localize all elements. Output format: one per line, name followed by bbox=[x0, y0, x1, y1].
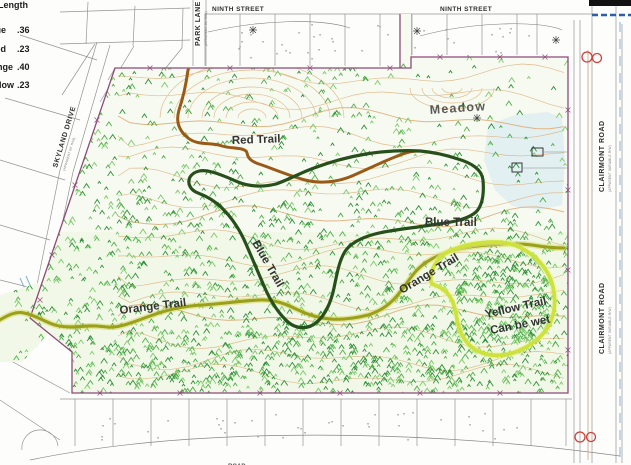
legend-row-yellow-label: Yellow bbox=[0, 80, 15, 90]
legend-row-orange-value: .40 bbox=[17, 62, 30, 72]
ninth-street-right-label: NINTH STREET bbox=[440, 6, 492, 13]
park-lane-sub-label: (APPARENT 50' R/W) bbox=[204, 11, 208, 46]
clairmont-road-upper-label: CLAIRMONT ROAD bbox=[599, 120, 606, 192]
trail-map-scan: Length Blue .36 Red .23 Orange .40 Yello… bbox=[0, 0, 631, 465]
red-circle-top-1 bbox=[582, 52, 592, 62]
legend-header: Length bbox=[0, 0, 28, 10]
legend: Length Blue .36 Red .23 Orange .40 Yello… bbox=[0, 0, 30, 90]
scale-bar bbox=[589, 0, 631, 6]
legend-row-blue-label: Blue bbox=[0, 25, 6, 35]
park-lane-label: PARK LANE bbox=[195, 1, 202, 46]
map-canvas: Length Blue .36 Red .23 Orange .40 Yello… bbox=[0, 0, 631, 465]
legend-row-blue-value: .36 bbox=[17, 25, 30, 35]
property-interior bbox=[0, 0, 631, 465]
clairmont-road-lower-label: CLAIRMONT ROAD bbox=[599, 282, 606, 354]
red-circle-top-2 bbox=[593, 54, 602, 63]
legend-row-red-label: Red bbox=[0, 44, 6, 54]
blue-trail-east-label: Blue Trail bbox=[425, 217, 477, 229]
clairmont-road-lower-sub: (APPARENT VARIABLE R/W) bbox=[608, 307, 612, 354]
legend-row-orange-label: Orange bbox=[0, 62, 13, 72]
scale-bar-group bbox=[589, 0, 631, 15]
clairmont-road-upper-sub: (APPARENT VARIABLE R/W) bbox=[608, 145, 612, 192]
legend-row-red-value: .23 bbox=[17, 44, 30, 54]
legend-row-yellow-value: .23 bbox=[17, 80, 30, 90]
ninth-street-left-label: NINTH STREET bbox=[212, 6, 264, 13]
lower-green-wash bbox=[0, 232, 631, 465]
red-trail-label: Red Trail bbox=[232, 133, 281, 147]
